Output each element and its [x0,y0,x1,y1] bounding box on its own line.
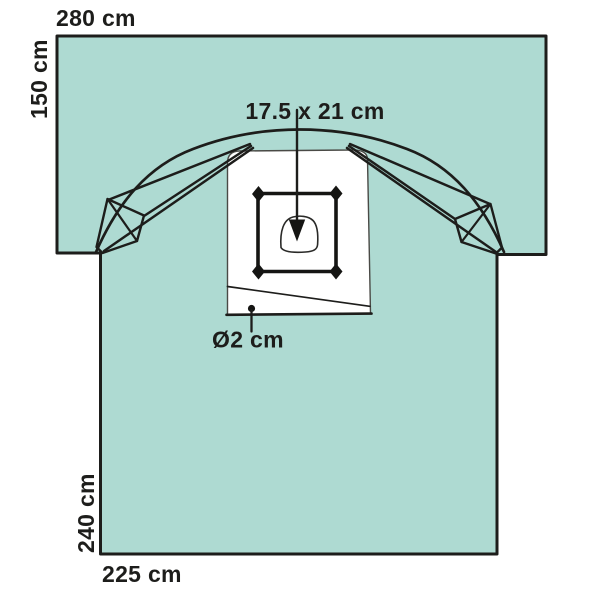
label-top-height: 150 cm [26,39,52,119]
label-main-width: 225 cm [102,561,182,587]
label-tube-hole: Ø2 cm [212,327,284,353]
drape-diagram: 280 cm 150 cm 240 cm 225 cm 17.5 x 21 cm… [0,0,600,600]
label-incise-area: 17.5 x 21 cm [245,98,384,124]
label-top-width: 280 cm [56,5,136,31]
drape-diagram-canvas: 280 cm 150 cm 240 cm 225 cm 17.5 x 21 cm… [0,0,600,600]
label-main-height: 240 cm [73,473,99,553]
incise-panel-bottom-edge [227,314,372,315]
